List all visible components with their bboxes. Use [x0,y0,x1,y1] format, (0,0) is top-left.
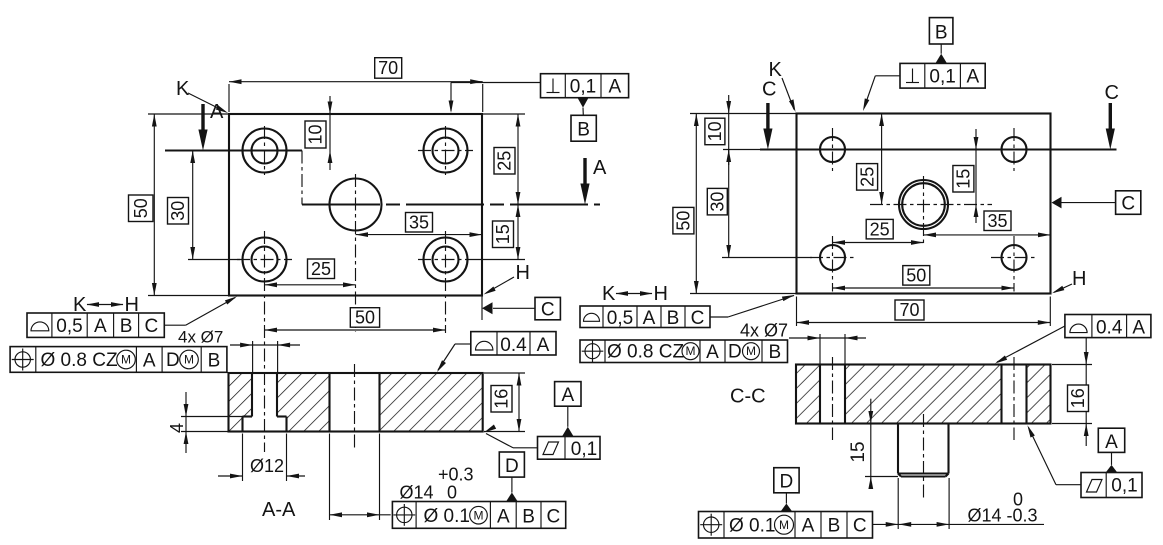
svg-text:C-C: C-C [730,386,766,408]
svg-text:4x Ø7: 4x Ø7 [740,321,788,341]
svg-text:0: 0 [447,483,457,503]
svg-text:A: A [561,385,574,406]
svg-text:15: 15 [848,441,869,462]
svg-text:Ø 0.1: Ø 0.1 [424,506,470,527]
svg-text:M: M [184,353,194,367]
svg-text:A: A [608,77,621,98]
svg-text:0,5: 0,5 [607,308,633,329]
svg-text:+0.3: +0.3 [438,465,474,485]
svg-text:A-A: A-A [262,499,296,521]
svg-text:30: 30 [168,201,188,221]
svg-text:C: C [691,308,705,329]
svg-text:A: A [966,66,979,87]
svg-text:0.4: 0.4 [500,335,527,356]
svg-text:15: 15 [954,169,974,189]
svg-text:0,1: 0,1 [929,66,955,87]
svg-text:A: A [802,516,815,537]
svg-text:C: C [1121,194,1135,215]
svg-text:4: 4 [167,423,187,433]
svg-text:C: C [762,79,776,101]
svg-text:50: 50 [131,198,151,218]
svg-text:35: 35 [409,213,429,233]
svg-text:A: A [497,506,510,527]
svg-text:B: B [828,516,841,537]
svg-text:D: D [728,342,742,363]
svg-text:15: 15 [493,224,513,244]
svg-text:50: 50 [906,266,926,286]
svg-text:30: 30 [708,192,728,212]
svg-text:0,1: 0,1 [1111,476,1137,497]
svg-text:A: A [537,335,550,356]
svg-text:Ø12: Ø12 [250,456,284,476]
svg-text:25: 25 [870,219,890,239]
svg-text:K: K [602,283,616,305]
svg-text:D: D [505,456,519,477]
svg-text:35: 35 [987,211,1007,231]
svg-text:B: B [667,308,680,329]
svg-text:B: B [935,22,948,43]
svg-text:B: B [120,316,133,337]
svg-text:A: A [1105,432,1118,453]
svg-text:16: 16 [492,389,512,409]
svg-text:70: 70 [899,300,919,320]
svg-text:C: C [547,506,561,527]
svg-text:K: K [176,78,190,100]
svg-text:A: A [94,316,107,337]
svg-text:A: A [143,351,156,372]
svg-text:0.4: 0.4 [1096,318,1123,339]
svg-text:B: B [522,506,535,527]
svg-text:0,1: 0,1 [570,77,596,98]
svg-text:Ø 0.8 CZ: Ø 0.8 CZ [41,350,118,371]
svg-text:0,1: 0,1 [571,439,597,460]
svg-text:A: A [593,157,607,179]
svg-text:Ø 0.8 CZ: Ø 0.8 CZ [607,342,684,363]
svg-text:C: C [145,316,159,337]
svg-text:B: B [768,342,781,363]
svg-text:Ø 0.1: Ø 0.1 [729,515,775,536]
svg-text:M: M [746,344,756,358]
svg-text:H: H [516,262,530,284]
svg-text:C: C [1105,82,1119,104]
svg-text:D: D [780,472,794,493]
svg-text:C: C [541,300,555,321]
svg-text:70: 70 [378,58,398,78]
svg-text:A: A [643,308,656,329]
svg-text:4x Ø7: 4x Ø7 [178,328,223,347]
svg-text:10: 10 [306,124,326,144]
svg-text:D: D [166,350,180,371]
svg-text:A: A [210,101,224,123]
svg-text:K: K [769,59,783,81]
svg-text:M: M [474,508,484,522]
svg-text:A: A [706,342,719,363]
svg-text:H: H [1072,268,1086,290]
svg-text:Ø14: Ø14 [400,483,434,503]
svg-text:50: 50 [674,211,694,231]
svg-text:M: M [686,344,696,358]
svg-text:50: 50 [355,308,375,328]
svg-text:Ø14 -0.3: Ø14 -0.3 [968,506,1038,526]
svg-text:25: 25 [311,259,331,279]
svg-text:10: 10 [705,121,725,141]
svg-text:C: C [853,516,867,537]
svg-text:A: A [1132,318,1145,339]
svg-text:0,5: 0,5 [56,316,82,337]
svg-text:M: M [121,353,131,367]
svg-text:B: B [577,119,590,140]
svg-text:25: 25 [857,167,877,187]
svg-text:25: 25 [495,151,515,171]
svg-text:B: B [208,351,221,372]
svg-text:H: H [654,283,668,305]
svg-text:M: M [779,518,789,532]
svg-text:16: 16 [1068,388,1088,408]
